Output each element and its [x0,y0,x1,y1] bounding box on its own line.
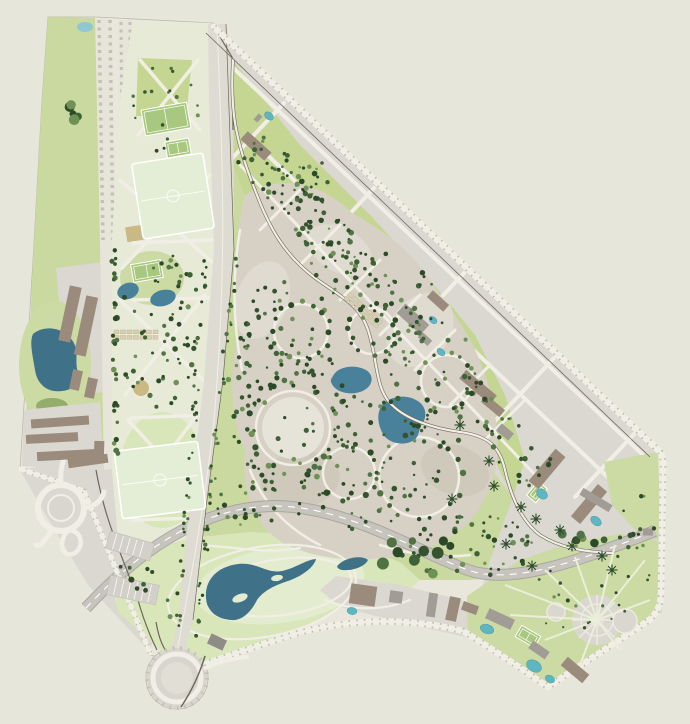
tree [493,545,496,548]
tree [272,289,277,294]
tree [342,249,345,252]
tree [214,437,218,441]
tree [636,546,639,549]
tree [312,430,315,433]
tree [235,264,238,267]
tree [143,588,148,593]
tree [333,278,338,283]
tree [587,621,590,624]
tree [353,256,355,258]
tree [234,257,238,261]
tree [516,473,521,478]
tree [341,443,345,447]
tree [418,323,421,326]
tree [375,477,379,481]
tree [253,153,256,156]
tree [497,568,500,571]
tree [262,136,266,140]
tree [520,538,525,543]
tree [402,494,407,499]
tree [257,467,260,470]
tree [303,479,306,482]
tree [307,231,310,234]
tree [428,516,432,520]
tree [114,437,119,442]
tree [240,395,244,399]
tree [392,486,398,492]
tree [345,405,348,408]
tree [304,428,309,433]
tree [370,282,374,286]
tree [321,453,327,459]
tree [166,137,169,140]
tree [300,226,305,231]
tree [514,556,517,559]
tree [409,545,413,549]
tree [66,100,75,109]
tree [285,158,289,162]
tree [280,450,283,453]
tree [175,591,179,595]
tree [116,421,119,424]
tree [374,278,378,282]
tree [194,401,198,405]
tree [173,380,179,386]
tree [151,352,154,355]
tree [299,166,302,169]
tree [246,384,251,389]
tree [240,407,245,412]
tree [180,574,184,578]
tree [286,292,289,295]
tree [113,248,117,252]
tree [601,536,608,543]
tree [246,322,250,326]
tree [583,626,586,629]
tree [337,241,341,245]
tree [446,542,454,550]
tree [297,351,301,355]
tree [186,304,191,309]
tree [201,594,204,597]
tree [368,420,373,425]
tree [326,329,332,335]
tree [482,521,485,524]
tree [327,357,332,362]
tree [256,314,261,319]
tree [243,508,246,511]
tree [290,171,293,174]
tree [482,530,485,533]
tree [418,315,423,320]
tree [412,551,416,555]
tree [399,298,404,303]
tree [525,479,528,482]
tree [261,187,265,191]
tree [111,334,115,338]
tree [434,378,437,381]
tree [322,241,325,244]
tree [648,574,650,576]
tree [194,369,197,372]
tree [574,604,577,607]
tree [562,626,564,628]
tree [461,406,464,409]
tree [266,196,269,199]
tree [307,165,311,169]
tree [459,401,464,406]
tree [425,397,430,402]
tree [390,291,394,295]
tree [217,507,220,510]
tree [263,488,267,492]
tree [259,514,262,517]
tree [214,429,217,432]
tree [224,332,228,336]
tree [457,493,462,498]
tree [419,533,422,536]
tree [372,485,377,490]
star-tree [484,456,495,467]
star-tree [455,420,466,431]
tree [422,527,427,532]
tree [202,540,205,543]
tree [132,95,135,98]
tree [610,618,612,620]
tree [222,503,227,508]
tree [378,404,382,408]
tree [383,307,387,311]
tree [307,193,312,198]
tree [349,262,353,266]
tree [317,466,322,471]
tree [254,451,259,456]
tree [134,355,138,359]
tree [194,634,198,638]
tree [490,568,493,571]
tree [536,466,540,470]
tree [233,435,236,438]
tree [298,461,302,465]
tree [545,622,547,624]
tree [145,567,149,571]
tree [369,438,373,442]
tree [618,536,622,540]
tree [217,513,219,515]
tree [291,384,295,388]
tree [255,308,260,313]
tree [387,537,397,547]
tree [590,539,599,548]
tree [282,184,285,187]
tree [356,348,360,352]
tree [341,254,345,258]
tree [159,261,163,265]
tree [377,558,389,570]
tree [185,494,188,497]
tree [476,420,480,424]
tree [248,364,252,368]
tree [262,400,267,405]
tree [290,317,295,322]
tree [277,168,281,172]
tree [278,326,283,331]
tree [238,484,242,488]
tree [187,376,190,379]
tree [237,440,241,444]
tree [324,265,327,268]
tree [396,513,400,517]
tree [169,401,173,405]
tree [313,196,318,201]
tree [143,90,147,94]
tree [318,493,321,496]
tree [417,370,422,375]
tree [132,104,135,107]
tree [186,477,190,481]
tree [294,228,298,232]
tree [337,219,340,222]
tree [189,481,192,484]
building [389,590,404,604]
tree [368,472,373,477]
tree [279,306,284,311]
tree [150,313,153,316]
tree [389,301,394,306]
tree [189,362,194,367]
tree [131,385,135,389]
tree [198,602,200,604]
tree [384,274,388,278]
tree [172,255,175,258]
tree [252,299,256,303]
tree [321,505,326,510]
tree [177,358,180,361]
tree [253,401,257,405]
tree [325,343,330,348]
tree [310,337,314,341]
tree [333,434,337,438]
tree [375,471,379,475]
tree [374,318,379,323]
tree [195,419,197,421]
tree [131,369,136,374]
tree [200,300,203,303]
tree [350,527,354,531]
tree [314,209,317,212]
tree [296,359,300,363]
tree [206,548,209,551]
tree [140,377,144,381]
tree [173,396,177,400]
tree [419,283,422,286]
tree [250,459,253,462]
tree [187,272,193,278]
tree [168,614,173,619]
tree [268,344,273,349]
tree [194,288,198,292]
tree [426,418,428,420]
tree [450,351,455,356]
tree [363,267,367,271]
tree [282,472,286,476]
park-master-plan [0,0,690,724]
tree [136,381,140,385]
tree [420,429,423,432]
tree [69,114,80,125]
tree [334,393,338,397]
tree [113,448,119,454]
tree [316,176,319,179]
tree [209,479,213,483]
tree [282,172,285,175]
tree [403,433,409,439]
tree [190,84,193,87]
tree [456,438,461,443]
star-tree [447,494,458,505]
tree [198,599,200,601]
tree [637,533,640,536]
tree [182,522,186,526]
tree [325,180,329,184]
tree [497,435,501,439]
tree [203,543,207,547]
tree [288,302,294,308]
tree [172,346,178,352]
tree [281,176,286,181]
tree [231,414,236,419]
tree [308,357,312,361]
tree [412,461,416,465]
tree [419,546,430,557]
tree [143,335,147,339]
tree [432,354,435,357]
tree [504,525,507,528]
tree [336,425,340,429]
tree [390,520,393,523]
star-tree [501,539,512,550]
tree [387,445,391,449]
tree [229,304,233,308]
tree [510,540,516,546]
tree [384,252,389,257]
tree [358,292,363,297]
tree [446,338,451,343]
tree [390,322,395,327]
tree [321,373,324,376]
tree [371,260,376,265]
tree [274,375,279,380]
tree [374,301,379,306]
tree [382,433,385,436]
tree [274,317,278,321]
tree [293,189,296,192]
tree [549,570,552,573]
tree [382,406,387,411]
tree [372,458,376,462]
tree [203,286,206,289]
tree [112,278,116,282]
tree [484,420,489,425]
tree [346,497,350,501]
tree [342,482,346,486]
tree [283,416,286,419]
tree [320,355,323,358]
tree [481,535,483,537]
tree [292,339,295,342]
tree [287,354,293,360]
tree [246,344,249,347]
tree [238,336,243,341]
tree [452,406,456,410]
tree [268,383,273,388]
tree [340,383,345,388]
tree [527,484,531,488]
tree [454,409,458,413]
tree [322,256,325,259]
tree [344,255,349,260]
tree [327,448,331,452]
tree [296,174,301,179]
tree [622,510,625,513]
tree [175,95,179,99]
tree [616,555,619,558]
tree [135,586,140,591]
tree [112,409,116,413]
tree [179,362,182,365]
tree [250,485,255,490]
tree [272,472,275,475]
tree [383,359,388,364]
tree [359,252,362,255]
tree [469,366,474,371]
tree [319,310,325,316]
tree [119,565,123,569]
tree [334,260,336,262]
tree [432,477,434,479]
tree [442,515,447,520]
tree [417,330,422,335]
tree [308,220,312,224]
tree [222,381,226,385]
tree [381,481,384,484]
tree [233,282,236,285]
tree [351,282,354,285]
tree [417,517,421,521]
tree [187,496,190,499]
tree [314,273,319,278]
tree [352,450,355,453]
tree [247,410,253,416]
tree [128,577,134,583]
tree [304,186,309,191]
tree [258,386,263,391]
tree [273,488,277,492]
tree [226,340,229,343]
tree [517,424,521,428]
tree [246,463,249,466]
tree [170,67,173,70]
tree [181,544,184,547]
tree [312,464,318,470]
tree [485,400,488,403]
tree [310,262,313,265]
tree [314,457,318,461]
tree [436,433,438,435]
tree [270,329,275,334]
tree [245,427,250,432]
tree [321,492,324,495]
